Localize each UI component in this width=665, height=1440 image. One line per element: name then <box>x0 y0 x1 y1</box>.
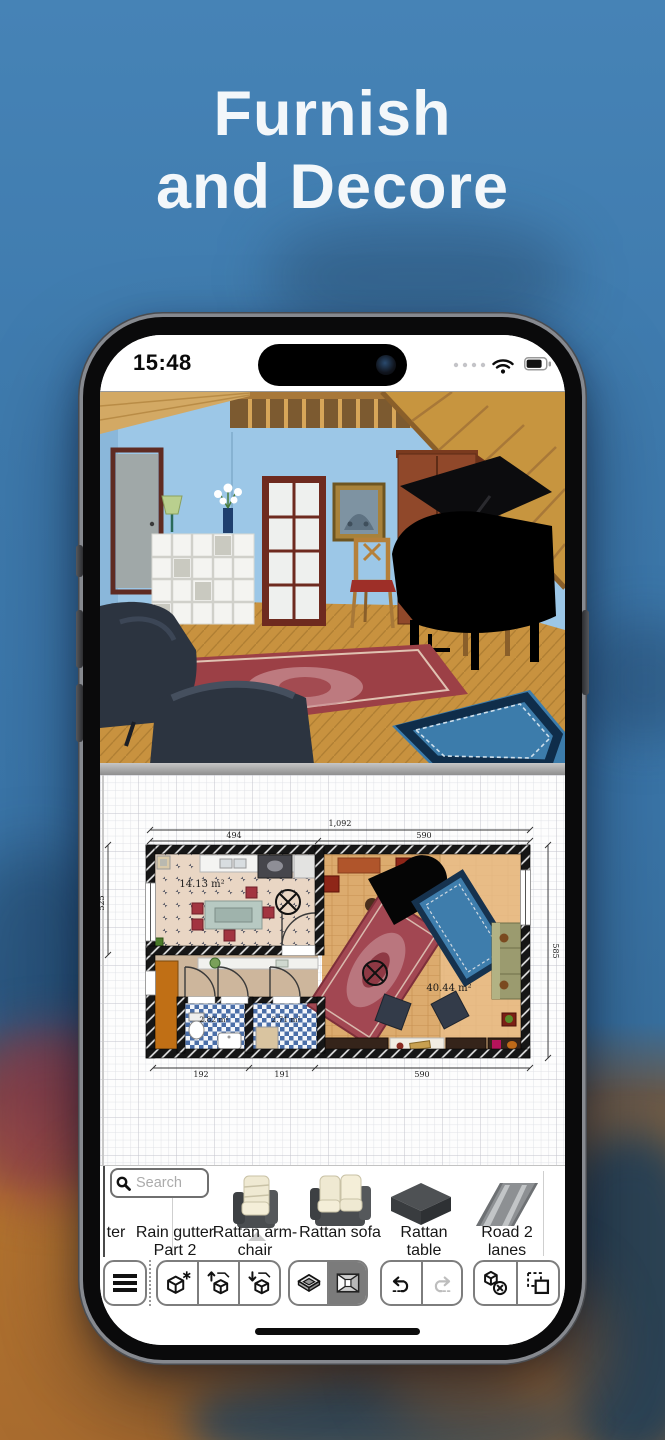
import-3d-object-button[interactable] <box>240 1262 279 1304</box>
dynamic-island <box>258 344 407 386</box>
dim-bottom-2: 191 <box>274 1070 289 1079</box>
menu-icon <box>111 1271 139 1295</box>
delete-object-button[interactable] <box>475 1262 518 1304</box>
phone-screen: 15:48 <box>100 335 565 1345</box>
import-3d-icon <box>246 1269 274 1297</box>
wifi-icon <box>491 357 515 375</box>
undo-icon <box>386 1270 416 1296</box>
armchair-front <box>150 684 314 764</box>
floor-plan-view[interactable]: 14.13 m² 2.82 m² 2.71 m² 40.44 m² <box>100 775 565 1165</box>
grand-piano <box>392 456 556 670</box>
iphone-mockup: 15:48 <box>83 317 582 1360</box>
power-button <box>582 610 589 695</box>
rattan-table-thumbnail[interactable] <box>387 1180 455 1228</box>
view-3d-icon <box>333 1269 363 1297</box>
blurred-background-shape <box>585 620 665 740</box>
home-indicator[interactable] <box>255 1328 420 1335</box>
french-door <box>262 476 326 626</box>
search-icon <box>116 1176 131 1191</box>
front-camera <box>376 355 396 375</box>
kitchen-area-label: 14.13 m² <box>179 879 224 890</box>
dim-side-right: 585 <box>551 943 560 958</box>
new-object-button[interactable] <box>158 1262 199 1304</box>
redo-icon <box>427 1270 457 1296</box>
title-line-1: Furnish <box>0 78 665 151</box>
object-tools-group <box>156 1260 281 1306</box>
dim-total: 1,092 <box>329 819 352 828</box>
search-input[interactable] <box>134 1174 196 1192</box>
view-mode-group <box>288 1260 368 1306</box>
select-copy-button[interactable] <box>518 1262 559 1304</box>
delete-object-icon <box>480 1269 510 1297</box>
dim-bottom-3: 590 <box>414 1070 429 1079</box>
view-2d-button[interactable] <box>290 1262 329 1304</box>
dim-top-right: 590 <box>416 831 431 840</box>
furniture-catalog: ter Rain gutterPart 2 Rattan arm-chair R… <box>100 1165 565 1258</box>
catalog-search-box[interactable] <box>110 1168 209 1198</box>
view-3d-button[interactable] <box>329 1262 366 1304</box>
toolbar-separator <box>149 1260 151 1306</box>
undo-button[interactable] <box>382 1262 423 1304</box>
menu-button[interactable] <box>103 1260 147 1306</box>
volume-up-button <box>76 610 83 668</box>
dim-top-left: 494 <box>226 831 241 840</box>
bath2-area-label: 2.71 m² <box>271 1015 300 1024</box>
blurred-background-shape <box>270 222 570 332</box>
new-object-icon <box>164 1269 192 1297</box>
app-store-screenshot: Furnish and Decore 15:48 <box>0 0 665 1440</box>
living-area-label: 40.44 m² <box>426 983 471 994</box>
dim-side-left: 525 <box>100 895 106 910</box>
catalog-item-road-2-lanes[interactable]: Road 2lanes <box>457 1224 557 1260</box>
dim-bottom-1: 192 <box>193 1070 208 1079</box>
export-3d-object-button[interactable] <box>199 1262 240 1304</box>
battery-icon <box>524 357 552 371</box>
rattan-sofa-thumbnail[interactable] <box>307 1172 373 1232</box>
cellular-signal-icon <box>452 361 486 369</box>
road-2-lanes-thumbnail[interactable] <box>474 1178 540 1230</box>
page-title: Furnish and Decore <box>0 78 665 224</box>
clock: 15:48 <box>133 350 192 376</box>
history-group <box>380 1260 463 1306</box>
edit-group <box>473 1260 560 1306</box>
mute-switch <box>76 545 83 577</box>
redo-button[interactable] <box>423 1262 462 1304</box>
view-2d-icon <box>294 1269 324 1297</box>
select-copy-icon <box>523 1269 553 1297</box>
export-3d-icon <box>205 1269 233 1297</box>
blurred-blue-rug <box>190 1370 570 1440</box>
catalog-category-divider <box>103 1166 105 1258</box>
hall-furniture <box>198 958 318 969</box>
volume-down-button <box>76 684 83 742</box>
wall-painting <box>334 484 384 540</box>
title-line-2: and Decore <box>0 151 665 224</box>
3d-room-view[interactable] <box>100 391 565 764</box>
bath1-area-label: 2.82 m² <box>199 1015 228 1024</box>
status-bar: 15:48 <box>100 335 565 391</box>
